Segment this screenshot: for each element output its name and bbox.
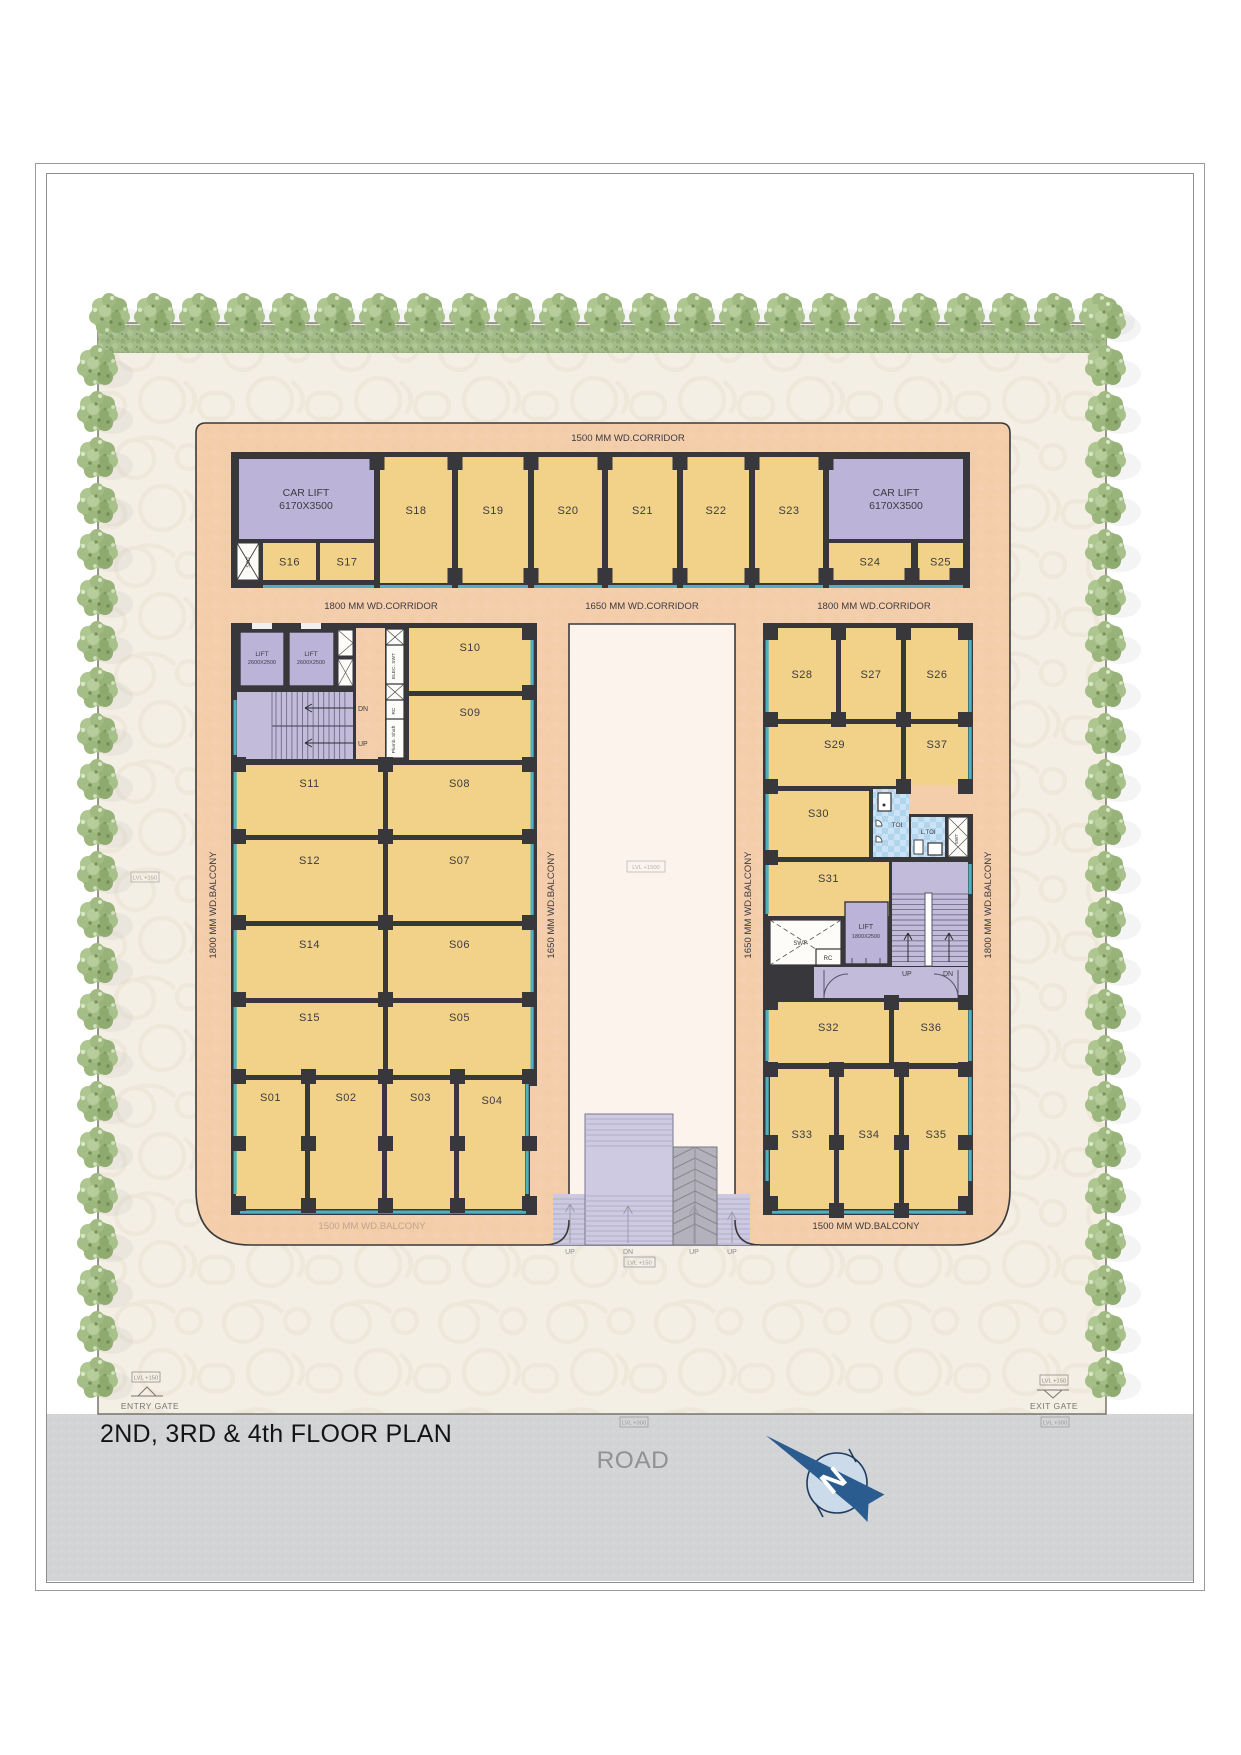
svg-text:L.TOI: L.TOI [921, 830, 936, 836]
svg-text:LVL +300: LVL +300 [622, 1421, 646, 1427]
svg-text:LIFT: LIFT [304, 651, 317, 658]
svg-text:1800 MM WD.BALCONY: 1800 MM WD.BALCONY [983, 851, 994, 959]
svg-text:S30: S30 [808, 808, 829, 820]
svg-text:1500 MM WD.BALCONY: 1500 MM WD.BALCONY [812, 1221, 920, 1232]
svg-text:2ND, 3RD & 4th FLOOR PLAN: 2ND, 3RD & 4th FLOOR PLAN [100, 1420, 452, 1448]
svg-text:S10: S10 [459, 642, 480, 654]
svg-text:UP: UP [358, 741, 368, 748]
svg-text:1650 MM WD.CORRIDOR: 1650 MM WD.CORRIDOR [585, 601, 699, 612]
svg-text:UP: UP [727, 1249, 737, 1256]
svg-text:S36: S36 [920, 1022, 941, 1034]
svg-text:Plumb. Shaft: Plumb. Shaft [391, 725, 397, 753]
svg-text:S05: S05 [449, 1012, 470, 1024]
svg-text:S08: S08 [449, 778, 470, 790]
svg-text:LVL +1500: LVL +1500 [632, 865, 660, 871]
svg-text:LVL +150: LVL +150 [627, 1261, 651, 1267]
svg-text:1800 MM WD.CORRIDOR: 1800 MM WD.CORRIDOR [324, 601, 438, 612]
svg-text:S23: S23 [778, 505, 799, 517]
svg-text:S28: S28 [791, 669, 812, 681]
svg-text:SWT: SWT [954, 834, 960, 845]
svg-text:S21: S21 [632, 505, 653, 517]
svg-text:S03: S03 [410, 1092, 431, 1104]
svg-text:S26: S26 [926, 669, 947, 681]
svg-text:S06: S06 [449, 939, 470, 951]
svg-text:6170X3500: 6170X3500 [279, 500, 333, 512]
svg-text:1500 MM WD.CORRIDOR: 1500 MM WD.CORRIDOR [571, 433, 685, 444]
svg-text:CAR LIFT: CAR LIFT [873, 487, 920, 499]
svg-text:1800 MM WD.BALCONY: 1800 MM WD.BALCONY [208, 851, 219, 959]
svg-text:S20: S20 [557, 505, 578, 517]
svg-text:LVL +150: LVL +150 [1042, 1379, 1066, 1385]
svg-text:S16: S16 [279, 557, 300, 569]
svg-text:TOI: TOI [892, 822, 903, 829]
svg-text:CAR LIFT: CAR LIFT [283, 487, 330, 499]
svg-text:S14: S14 [299, 939, 320, 951]
svg-text:S34: S34 [858, 1129, 879, 1141]
svg-text:1650 MM WD.BALCONY: 1650 MM WD.BALCONY [546, 851, 557, 959]
svg-text:S25: S25 [930, 557, 951, 569]
svg-text:S11: S11 [299, 778, 319, 790]
svg-text:S01: S01 [260, 1092, 281, 1104]
svg-text:S22: S22 [705, 505, 726, 517]
svg-text:S02: S02 [335, 1092, 356, 1104]
svg-text:S09: S09 [459, 707, 480, 719]
svg-text:S24: S24 [859, 557, 880, 569]
svg-text:S12: S12 [299, 855, 320, 867]
svg-text:RC: RC [391, 707, 397, 714]
svg-text:ENTRY GATE: ENTRY GATE [121, 1401, 179, 1411]
svg-text:S35: S35 [925, 1129, 946, 1141]
svg-text:DN: DN [358, 706, 368, 713]
svg-text:S17: S17 [336, 557, 357, 569]
svg-text:LIFT: LIFT [255, 651, 268, 658]
svg-text:1650 MM WD.BALCONY: 1650 MM WD.BALCONY [743, 851, 754, 959]
svg-text:S37: S37 [926, 739, 947, 751]
svg-text:UP: UP [902, 971, 912, 978]
svg-text:1800X2500: 1800X2500 [852, 934, 880, 940]
svg-text:1800 MM WD.CORRIDOR: 1800 MM WD.CORRIDOR [817, 601, 931, 612]
svg-text:S27: S27 [860, 669, 881, 681]
svg-text:S15: S15 [299, 1012, 320, 1024]
svg-text:1500 MM WD.BALCONY: 1500 MM WD.BALCONY [318, 1221, 426, 1232]
svg-text:S32: S32 [818, 1022, 839, 1034]
svg-text:DN: DN [623, 1249, 633, 1256]
svg-text:S07: S07 [449, 855, 470, 867]
svg-text:S19: S19 [482, 505, 503, 517]
svg-text:UP: UP [565, 1249, 575, 1256]
svg-text:UP: UP [689, 1249, 699, 1256]
svg-text:ROAD: ROAD [597, 1447, 670, 1474]
svg-text:SWT: SWT [793, 941, 807, 947]
svg-text:DN: DN [943, 971, 953, 978]
svg-text:ELEC. SWT: ELEC. SWT [391, 653, 397, 679]
svg-text:S29: S29 [824, 739, 845, 751]
svg-text:LVL +150: LVL +150 [134, 1376, 158, 1382]
svg-text:2600X2500: 2600X2500 [297, 660, 325, 666]
svg-text:EXIT GATE: EXIT GATE [1030, 1401, 1078, 1411]
svg-text:LIFT: LIFT [859, 924, 874, 931]
svg-text:S18: S18 [405, 505, 426, 517]
svg-text:RC: RC [824, 956, 833, 962]
svg-text:S31: S31 [818, 873, 839, 885]
svg-text:S33: S33 [791, 1129, 812, 1141]
svg-text:2600X2500: 2600X2500 [248, 660, 276, 666]
svg-text:LVL +300: LVL +300 [1043, 1421, 1067, 1427]
svg-text:SWT: SWT [246, 556, 252, 567]
svg-text:S04: S04 [481, 1095, 502, 1107]
svg-text:6170X3500: 6170X3500 [869, 500, 923, 512]
svg-text:LVL +150: LVL +150 [133, 876, 157, 882]
